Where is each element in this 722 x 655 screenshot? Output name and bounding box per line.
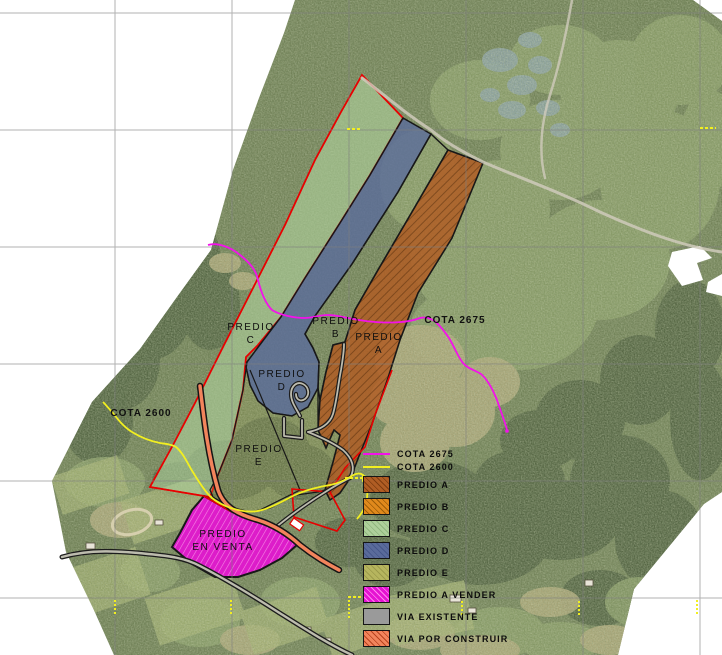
legend-item: PREDIO A <box>363 476 508 493</box>
legend-item: COTA 2600 <box>363 463 508 471</box>
legend-label: PREDIO E <box>397 568 449 578</box>
legend: COTA 2675COTA 2600PREDIO APREDIO BPREDIO… <box>363 450 508 647</box>
legend-item: PREDIO D <box>363 542 508 559</box>
legend-line-sample <box>363 466 390 468</box>
site-plan-map <box>0 0 722 655</box>
legend-swatch <box>363 608 390 625</box>
legend-item: PREDIO B <box>363 498 508 515</box>
legend-label: COTA 2675 <box>397 449 454 459</box>
legend-swatch <box>363 586 390 603</box>
legend-label: PREDIO A VENDER <box>397 590 496 600</box>
legend-label: PREDIO B <box>397 502 449 512</box>
legend-item: COTA 2675 <box>363 450 508 458</box>
legend-swatch <box>363 564 390 581</box>
legend-label: COTA 2600 <box>397 462 454 472</box>
legend-item: VIA EXISTENTE <box>363 608 508 625</box>
legend-label: PREDIO D <box>397 546 449 556</box>
cota-2675-endpoint <box>505 429 509 433</box>
legend-swatch <box>363 542 390 559</box>
legend-label: VIA EXISTENTE <box>397 612 478 622</box>
legend-label: PREDIO C <box>397 524 449 534</box>
legend-label: PREDIO A <box>397 480 449 490</box>
legend-swatch <box>363 498 390 515</box>
legend-swatch <box>363 520 390 537</box>
site-plan-page: PREDIO CPREDIO BPREDIO APREDIO DPREDIO E… <box>0 0 722 655</box>
legend-item: PREDIO C <box>363 520 508 537</box>
legend-item: VIA POR CONSTRUIR <box>363 630 508 647</box>
legend-item: PREDIO A VENDER <box>363 586 508 603</box>
legend-line-sample <box>363 453 390 455</box>
legend-swatch <box>363 630 390 647</box>
legend-swatch <box>363 476 390 493</box>
legend-item: PREDIO E <box>363 564 508 581</box>
legend-label: VIA POR CONSTRUIR <box>397 634 508 644</box>
